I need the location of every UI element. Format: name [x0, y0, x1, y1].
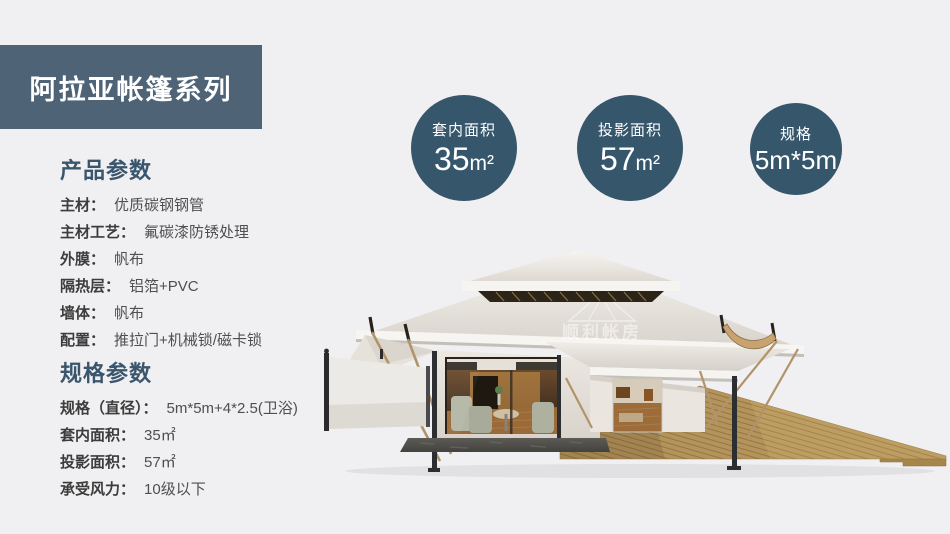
corner-post — [557, 355, 561, 438]
param-row-insulation: 隔热层： 铝箔+PVC — [60, 275, 360, 302]
tent-render-svg: 顺利帐房 WELL TENT — [320, 245, 950, 495]
deck-step — [880, 459, 946, 466]
spec-params-section: 规格参数 规格（直径）： 5m*5m+4*2.5(卫浴) 套内面积： 35㎡ 投… — [60, 356, 360, 505]
badge-value: 35m² — [434, 143, 494, 177]
param-label: 套内面积： — [60, 424, 135, 445]
page-title: 阿拉亚帐篷系列 — [30, 68, 233, 107]
watermark-cn: 顺利帐房 — [562, 322, 642, 342]
param-value: 10级以下 — [144, 478, 206, 499]
param-label: 主材： — [60, 194, 105, 215]
badge-unit: m² — [636, 152, 661, 175]
param-label: 配置： — [60, 329, 105, 350]
page: 阿拉亚帐篷系列 产品参数 主材： 优质碳钢钢管 主材工艺： 氟碳漆防锈处理 外膜… — [0, 0, 950, 534]
param-value: 氟碳漆防锈处理 — [144, 221, 249, 242]
badge-unit: m² — [470, 152, 495, 175]
param-value: 优质碳钢钢管 — [114, 194, 204, 215]
param-value: 5m*5m+4*2.5(卫浴) — [167, 397, 298, 418]
param-label: 墙体： — [60, 302, 105, 323]
param-value: 铝箔+PVC — [129, 275, 199, 296]
param-label: 外膜： — [60, 248, 105, 269]
param-value: 推拉门+机械锁/磁卡锁 — [114, 329, 262, 350]
param-row-wind-resistance: 承受风力： 10级以下 — [60, 478, 360, 505]
badge-size: 规格 5m*5m — [750, 103, 842, 195]
spec-params-heading: 规格参数 — [60, 356, 360, 388]
param-row-configuration: 配置： 推拉门+机械锁/磁卡锁 — [60, 329, 360, 356]
product-params-section: 产品参数 主材： 优质碳钢钢管 主材工艺： 氟碳漆防锈处理 外膜： 帆布 隔热层… — [60, 153, 360, 356]
param-label: 主材工艺： — [60, 221, 135, 242]
badge-inner-area: 套内面积 35m² — [411, 95, 517, 201]
param-value: 57㎡ — [144, 451, 176, 472]
interior-chair — [644, 389, 653, 401]
param-value: 35㎡ — [144, 424, 176, 445]
interior-cabinet — [616, 387, 630, 398]
param-row-outer-membrane: 外膜： 帆布 — [60, 248, 360, 275]
interior-armchair — [532, 402, 554, 433]
badge-value: 5m*5m — [755, 147, 837, 174]
param-label: 隔热层： — [60, 275, 120, 296]
corner-post — [432, 351, 437, 470]
param-row-material-process: 主材工艺： 氟碳漆防锈处理 — [60, 221, 360, 248]
interior-cabinet — [473, 376, 498, 409]
badge-label: 规格 — [780, 123, 812, 144]
top-tier-roof — [462, 250, 680, 302]
badge-label: 套内面积 — [432, 119, 496, 140]
param-label: 投影面积： — [60, 451, 135, 472]
interior-armchair — [469, 406, 492, 433]
param-row-material: 主材： 优质碳钢钢管 — [60, 194, 360, 221]
param-label: 规格（直径）： — [60, 397, 158, 418]
param-row-wall: 墙体： 帆布 — [60, 302, 360, 329]
param-value: 帆布 — [114, 248, 144, 269]
interior-rug — [619, 413, 643, 422]
annex-wall — [590, 375, 705, 432]
param-value: 帆布 — [114, 302, 144, 323]
interior-plant — [495, 386, 503, 394]
roof-lattice — [478, 291, 664, 302]
param-row-size: 规格（直径）： 5m*5m+4*2.5(卫浴) — [60, 397, 360, 424]
param-row-inner-area: 套内面积： 35㎡ — [60, 424, 360, 451]
badge-projection-area: 投影面积 57m² — [577, 95, 683, 201]
badge-label: 投影面积 — [598, 119, 662, 140]
param-row-projection-area: 投影面积： 57㎡ — [60, 451, 360, 478]
tent-illustration: 顺利帐房 WELL TENT — [320, 245, 950, 495]
annex-post — [732, 376, 737, 468]
stone-base — [400, 438, 610, 452]
param-label: 承受风力： — [60, 478, 135, 499]
title-banner: 阿拉亚帐篷系列 — [0, 45, 262, 129]
badge-value: 57m² — [600, 143, 660, 177]
product-params-heading: 产品参数 — [60, 153, 360, 185]
annex-doorway — [613, 379, 662, 432]
